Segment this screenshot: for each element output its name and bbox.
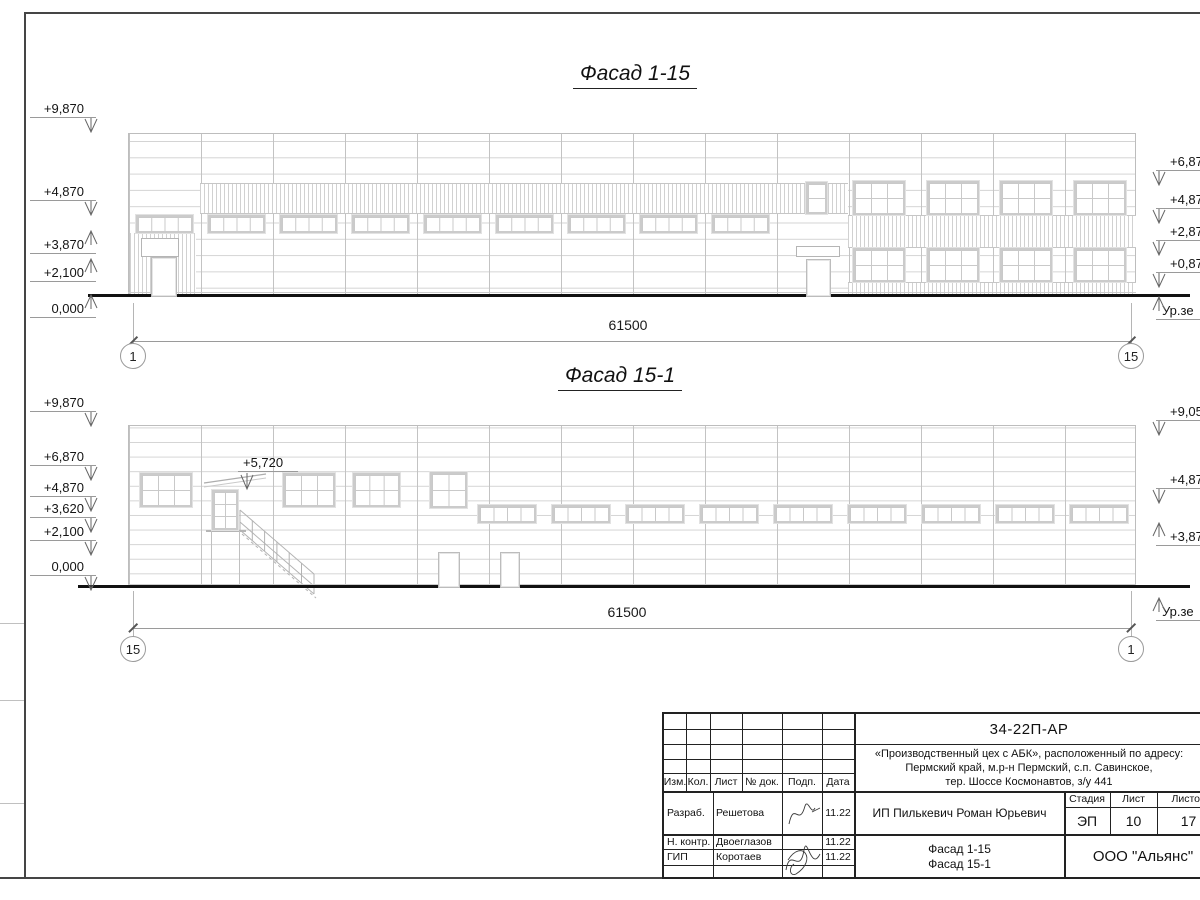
elevation-shelf (30, 281, 96, 282)
tb-col-data: Дата (822, 773, 854, 791)
elevation-label: +5,720 (243, 455, 313, 470)
door (806, 259, 831, 297)
elevation-label: +6,87 (1170, 154, 1200, 169)
tb-drawing-title: Фасад 1-15 Фасад 15-1 (856, 834, 1063, 879)
facade1-clerestory-band (200, 183, 848, 214)
axis-number: 1 (1127, 642, 1134, 657)
tb-sheets-value: 17 (1157, 807, 1200, 834)
level-arrow-icon (1152, 171, 1166, 186)
grid-window (1000, 181, 1052, 215)
elevation-label: +0,87 (1170, 256, 1200, 271)
axis-number: 15 (1124, 349, 1138, 364)
level-arrow-icon (84, 518, 98, 533)
elevation-label: 0,000 (20, 301, 84, 316)
facade1-ground-line (88, 294, 1190, 297)
tb-address: «Производственный цех с АБК», расположен… (858, 745, 1200, 791)
grid-window (853, 248, 905, 282)
tb-line (664, 759, 854, 760)
elevation-shelf (30, 253, 96, 254)
elevation-label: +2,87 (1170, 224, 1200, 239)
strip-window (424, 215, 481, 233)
facade2-axis-bubble-right: 1 (1118, 636, 1144, 662)
elevation-label: Ур.зе (1162, 604, 1200, 619)
small-window (806, 182, 827, 214)
facade1-title-text: Фасад 1-15 (573, 62, 697, 89)
tb-col-list: Лист (710, 773, 742, 791)
tb-drawing-title-line: Фасад 15-1 (928, 857, 991, 872)
strip-window (568, 215, 625, 233)
tb-address-line: «Производственный цех с АБК», расположен… (875, 747, 1183, 761)
tb-name: Двоеглазов (716, 834, 782, 849)
facade2-extension-line-right (1131, 591, 1132, 637)
strip-window (352, 215, 409, 233)
level-arrow-icon (84, 412, 98, 427)
level-arrow-icon (1152, 209, 1166, 224)
facade1-title: Фасад 1-15 (535, 60, 735, 90)
grid-window (140, 473, 192, 507)
door (151, 257, 177, 297)
strip-window (848, 505, 906, 523)
frame-top (24, 12, 1200, 14)
tb-col-izm: Изм. (664, 773, 686, 791)
tb-role: ГИП (667, 849, 713, 865)
strip-window (552, 505, 610, 523)
grid-window (1000, 248, 1052, 282)
side-stamp-line (0, 803, 24, 804)
strip-window (922, 505, 980, 523)
facade2-dimension-line (133, 628, 1131, 629)
strip-window (1070, 505, 1128, 523)
side-stamp-line (0, 700, 24, 701)
level-arrow-icon (1152, 522, 1166, 537)
landing-post (211, 531, 212, 586)
tb-doc-number: 34-22П-АР (856, 714, 1200, 744)
exit-door (212, 490, 238, 530)
strip-window (640, 215, 697, 233)
tb-company: ООО "Альянс" (1066, 834, 1200, 879)
elevation-label: +6,870 (20, 449, 84, 464)
tb-address-line: тер. Шоссе Космонавтов, з/у 441 (945, 775, 1112, 789)
tb-role: Н. контр. (667, 834, 713, 849)
level-arrow-icon (1152, 597, 1166, 612)
elevation-label: +3,620 (20, 501, 84, 516)
facade1-abk-hatch (848, 215, 1136, 248)
tb-sheet-value: 10 (1110, 807, 1157, 834)
tb-line (664, 865, 854, 866)
strip-window (774, 505, 832, 523)
facade1-door2-canopy (796, 246, 840, 257)
level-arrow-icon (1152, 421, 1166, 436)
facade1-axis-bubble-left: 1 (120, 343, 146, 369)
drawing-sheet: Фасад 1-15 61500 1 15 Фасад 15-1 (0, 0, 1200, 900)
level-arrow-icon (84, 118, 98, 133)
elevation-shelf (1156, 620, 1200, 621)
tb-date: 11.22 (823, 849, 853, 865)
level-arrow-icon (84, 541, 98, 556)
facade2-extension-line-left (133, 591, 134, 637)
signature (782, 832, 824, 878)
door (438, 552, 460, 588)
elevation-label: +9,870 (20, 395, 84, 410)
strip-window (208, 215, 265, 233)
tb-col-kol: Кол. (686, 773, 710, 791)
tb-line (664, 729, 854, 730)
level-arrow-icon (1152, 241, 1166, 256)
tb-drawing-title-line: Фасад 1-15 (928, 842, 991, 857)
facade1-dimension-text: 61500 (578, 317, 678, 333)
level-arrow-icon (84, 466, 98, 481)
grid-window (353, 473, 400, 507)
axis-number: 1 (129, 349, 136, 364)
elevation-shelf (1156, 319, 1200, 320)
grid-window (283, 473, 335, 507)
strip-window (712, 215, 769, 233)
facade1-axis-bubble-right: 15 (1118, 343, 1144, 369)
tb-name: Решетова (716, 791, 782, 834)
tb-date: 11.22 (823, 834, 853, 849)
tb-sheet-label: Лист (1110, 791, 1157, 807)
elevation-label: +9,05 (1170, 404, 1200, 419)
grid-window (1074, 181, 1126, 215)
facade1-entrance-canopy (141, 238, 179, 257)
level-arrow-icon (84, 294, 98, 309)
elevation-label: +9,870 (20, 101, 84, 116)
strip-window (136, 215, 193, 233)
tb-address-line: Пермский край, м.р-н Пермский, с.п. Сави… (905, 761, 1152, 775)
elevation-label: +4,870 (20, 480, 84, 495)
tb-col-podp: Подп. (782, 773, 822, 791)
elevation-label: +2,100 (20, 265, 84, 280)
strip-window (478, 505, 536, 523)
elevation-shelf (238, 471, 298, 472)
level-arrow-icon (84, 497, 98, 512)
strip-window (996, 505, 1054, 523)
tb-col-doc: № док. (742, 773, 782, 791)
door (500, 552, 520, 588)
level-arrow-icon (84, 201, 98, 216)
elevation-label: Ур.зе (1162, 303, 1200, 318)
level-arrow-icon (240, 473, 254, 491)
grid-window (853, 181, 905, 215)
level-arrow-icon (84, 230, 98, 245)
elevation-label: 0,000 (20, 559, 84, 574)
tb-line (713, 791, 714, 879)
strip-window (626, 505, 684, 523)
elevation-label: +4,87 (1170, 192, 1200, 207)
tb-sheets-label: Листов (1157, 791, 1200, 807)
elevation-label: +4,870 (20, 184, 84, 199)
facade2-axis-bubble-left: 15 (120, 636, 146, 662)
grid-window (1074, 248, 1126, 282)
tb-date: 11.22 (823, 791, 853, 834)
elevation-label: +3,87 (1170, 529, 1200, 544)
tb-role: Разраб. (667, 791, 713, 834)
elevation-shelf (30, 317, 96, 318)
side-stamp-line (0, 623, 24, 624)
tb-client: ИП Пилькевич Роман Юрьевич (856, 791, 1063, 834)
facade1-base-line (128, 292, 1136, 293)
strip-window (700, 505, 758, 523)
elevation-shelf (1156, 545, 1200, 546)
grid-window (927, 248, 979, 282)
level-arrow-icon (84, 258, 98, 273)
strip-window (496, 215, 553, 233)
axis-number: 15 (126, 642, 140, 657)
tb-name: Коротаев (716, 849, 782, 865)
facade2-dimension-text: 61500 (577, 604, 677, 620)
facade2-ground-line (78, 585, 1190, 588)
elevation-label: +3,870 (20, 237, 84, 252)
level-arrow-icon (1152, 296, 1166, 311)
facade2-title-text: Фасад 15-1 (558, 364, 682, 391)
level-arrow-icon (1152, 489, 1166, 504)
facade1-dimension-line (133, 341, 1131, 342)
level-arrow-icon (84, 576, 98, 591)
title-block: Изм. Кол. Лист № док. Подп. Дата Разраб.… (662, 712, 1200, 879)
level-arrow-icon (1152, 273, 1166, 288)
elevation-label: +2,100 (20, 524, 84, 539)
strip-window (280, 215, 337, 233)
facade2-title: Фасад 15-1 (520, 362, 720, 392)
grid-window (430, 472, 467, 508)
elevation-label: +4,87 (1170, 472, 1200, 487)
tb-stage-label: Стадия (1064, 791, 1110, 807)
tb-stage-value: ЭП (1064, 807, 1110, 834)
frame-left (24, 12, 26, 879)
signature (784, 794, 822, 831)
grid-window (927, 181, 979, 215)
